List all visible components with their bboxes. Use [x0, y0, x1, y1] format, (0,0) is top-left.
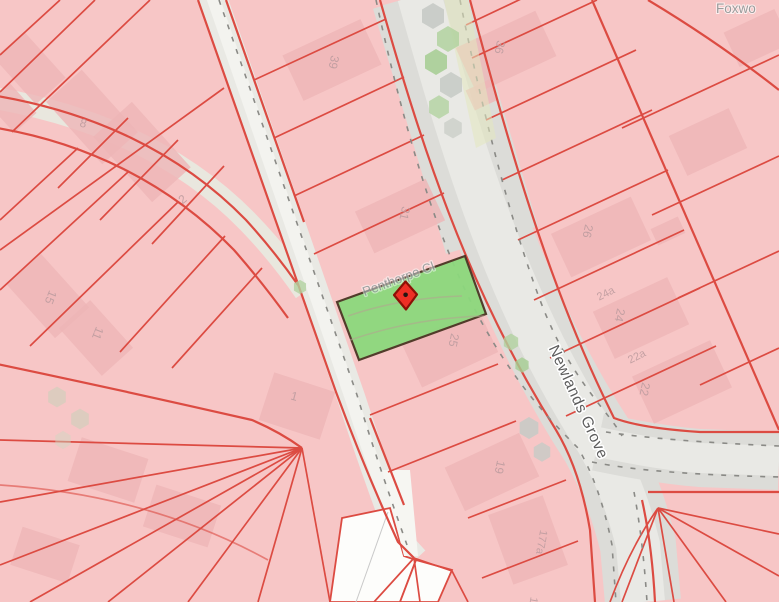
- marker-pin-dot-icon: [403, 293, 408, 298]
- street-label-foxwood: Foxwo: [716, 1, 756, 16]
- map-canvas[interactable]: Penthorpe Cl Newlands Grove Foxwo 39 31 …: [0, 0, 779, 602]
- parcel-map-svg: Penthorpe Cl Newlands Grove Foxwo 39 31 …: [0, 0, 779, 602]
